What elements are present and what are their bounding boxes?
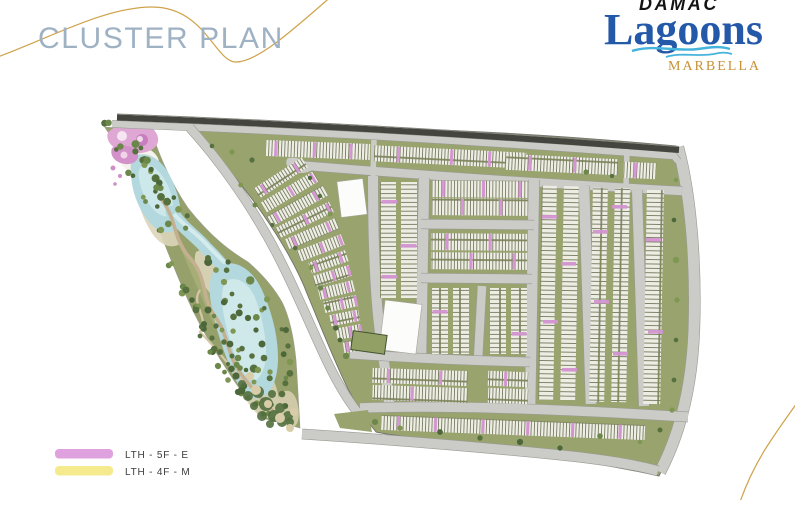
svg-text:Lagoons: Lagoons — [604, 5, 763, 54]
svg-text:LTH - 5F - E: LTH - 5F - E — [125, 450, 189, 461]
svg-text:LTH - 4F - M: LTH - 4F - M — [125, 467, 191, 478]
svg-text:CLUSTER PLAN: CLUSTER PLAN — [38, 22, 284, 55]
svg-text:MARBELLA: MARBELLA — [668, 59, 761, 74]
